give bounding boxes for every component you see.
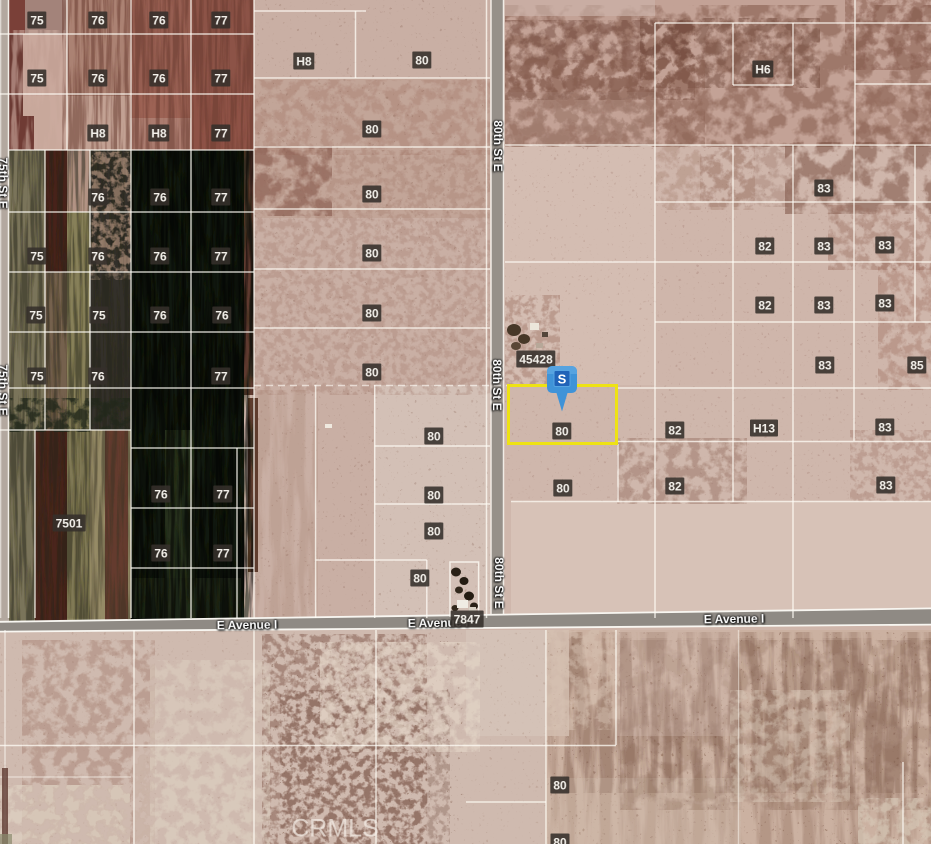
svg-text:S: S	[558, 372, 567, 387]
